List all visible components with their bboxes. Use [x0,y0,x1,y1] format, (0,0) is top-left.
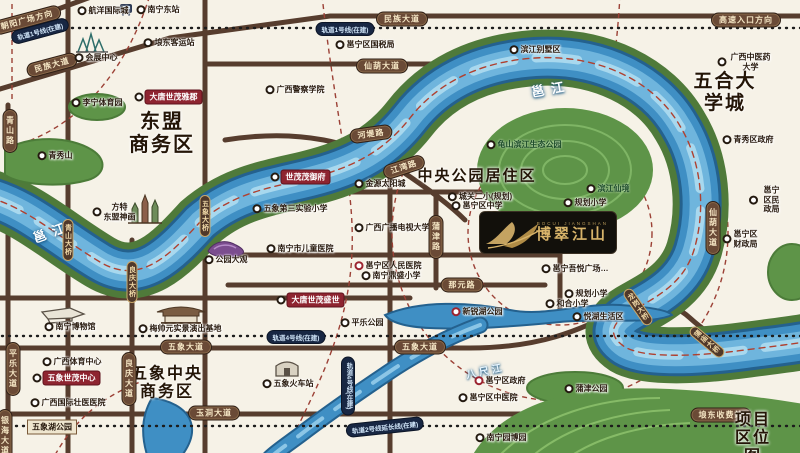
map-base-graphics [0,0,800,453]
project-logo-bocui-jiangshan: BOCUI JIANGSHAN 博翠江山 [479,211,617,254]
lining-park-green [69,94,125,120]
logo-title: 博翠江山 [536,228,608,243]
project-location-map: BOCUI JIANGSHAN 博翠江山 朝阳广场方向轨道1号线(在建)航洋国际… [0,0,800,453]
wuxiang-station-icon [276,362,298,376]
logo-subtitle: BOCUI JIANGSHAN [536,222,608,227]
logo-mountain-art [484,214,542,252]
